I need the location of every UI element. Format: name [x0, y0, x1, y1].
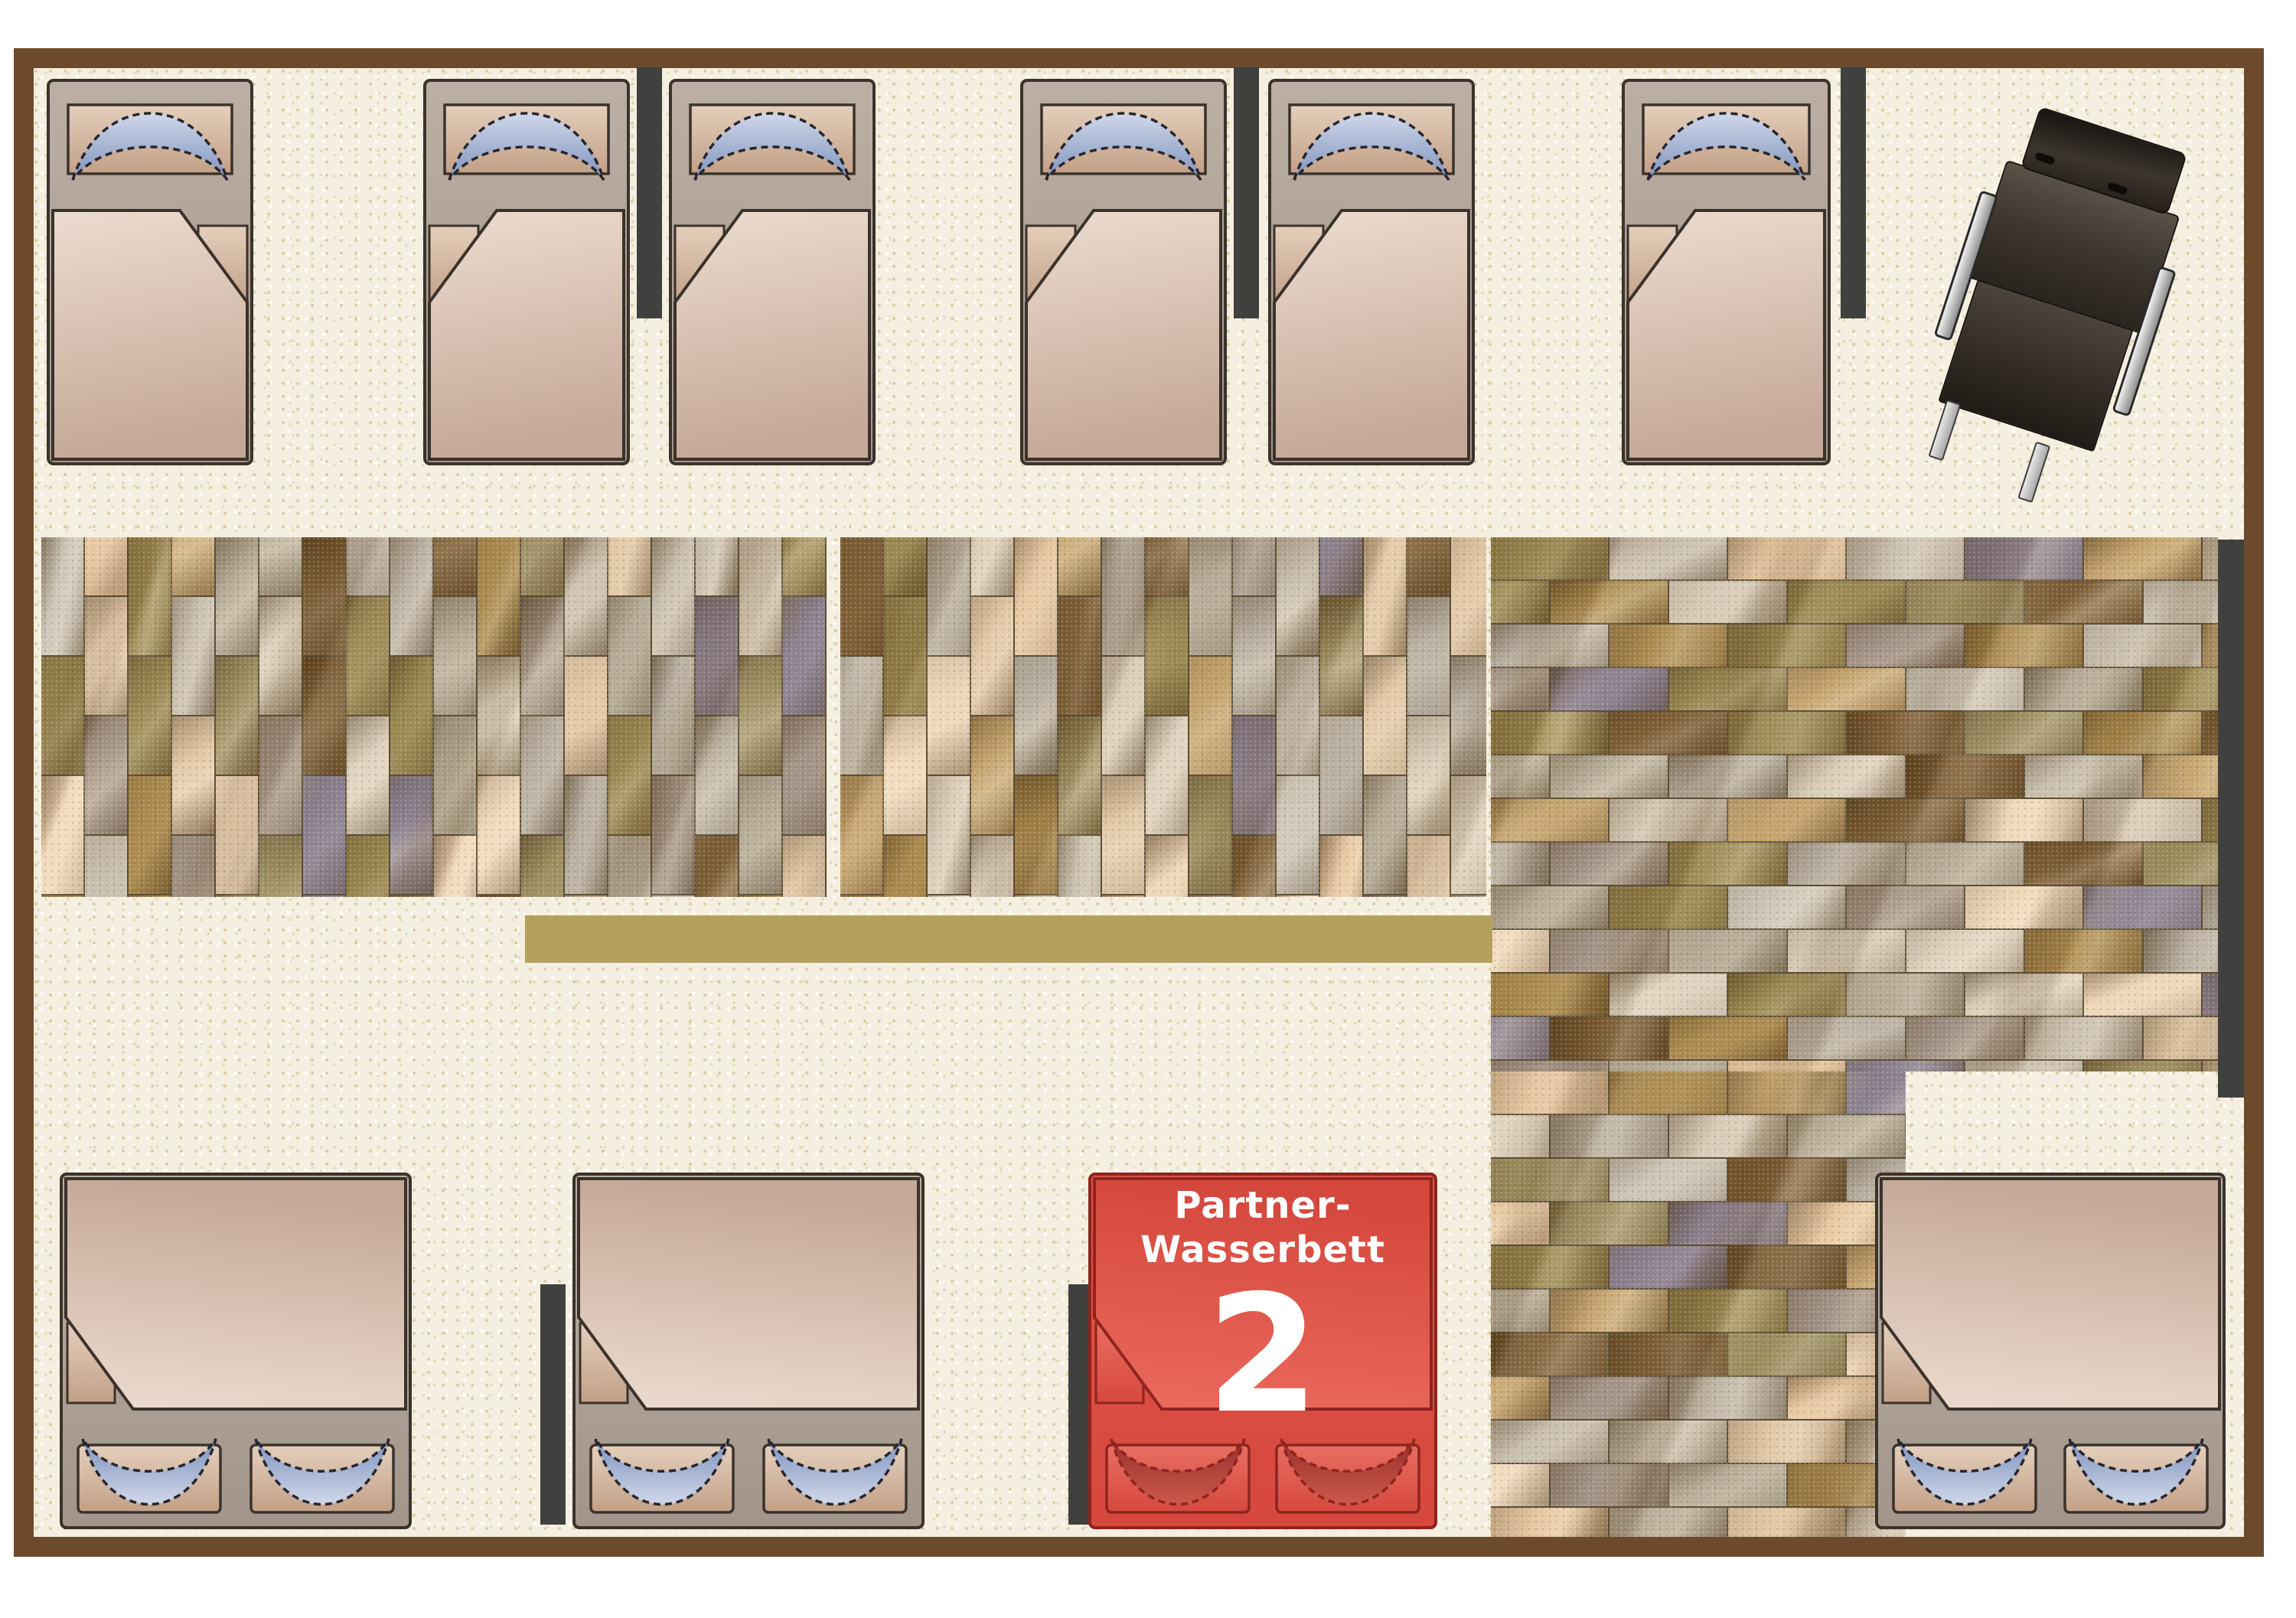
wall-segment-top-2 — [1234, 67, 1259, 318]
double-bed-3[interactable] — [1875, 1173, 2226, 1529]
wall-segment-top-3 — [1841, 67, 1866, 318]
single-bed-2[interactable] — [423, 79, 630, 465]
floor-plan: Partner- Wasserbett 2 — [0, 0, 2296, 1618]
wall-segment-top-1 — [637, 67, 662, 318]
wall-segment-bottom-1 — [540, 1284, 566, 1525]
single-bed-4[interactable] — [1020, 79, 1227, 465]
stone-path-upper-left — [41, 537, 827, 897]
wall-segment-right — [2218, 540, 2244, 1098]
single-bed-3[interactable] — [669, 79, 876, 465]
sideboard-bench — [525, 915, 1492, 963]
double-bed-1[interactable] — [60, 1173, 412, 1529]
partner-waterbed-2[interactable]: Partner- Wasserbett 2 — [1088, 1173, 1437, 1529]
stone-path-upper-right — [840, 537, 1486, 897]
single-bed-5[interactable] — [1268, 79, 1475, 465]
double-bed-2[interactable] — [572, 1173, 925, 1529]
stone-path-right-block — [1491, 537, 2218, 1072]
single-bed-1[interactable] — [47, 79, 253, 465]
stone-path-column — [1491, 1072, 1906, 1537]
single-bed-6[interactable] — [1622, 79, 1831, 465]
